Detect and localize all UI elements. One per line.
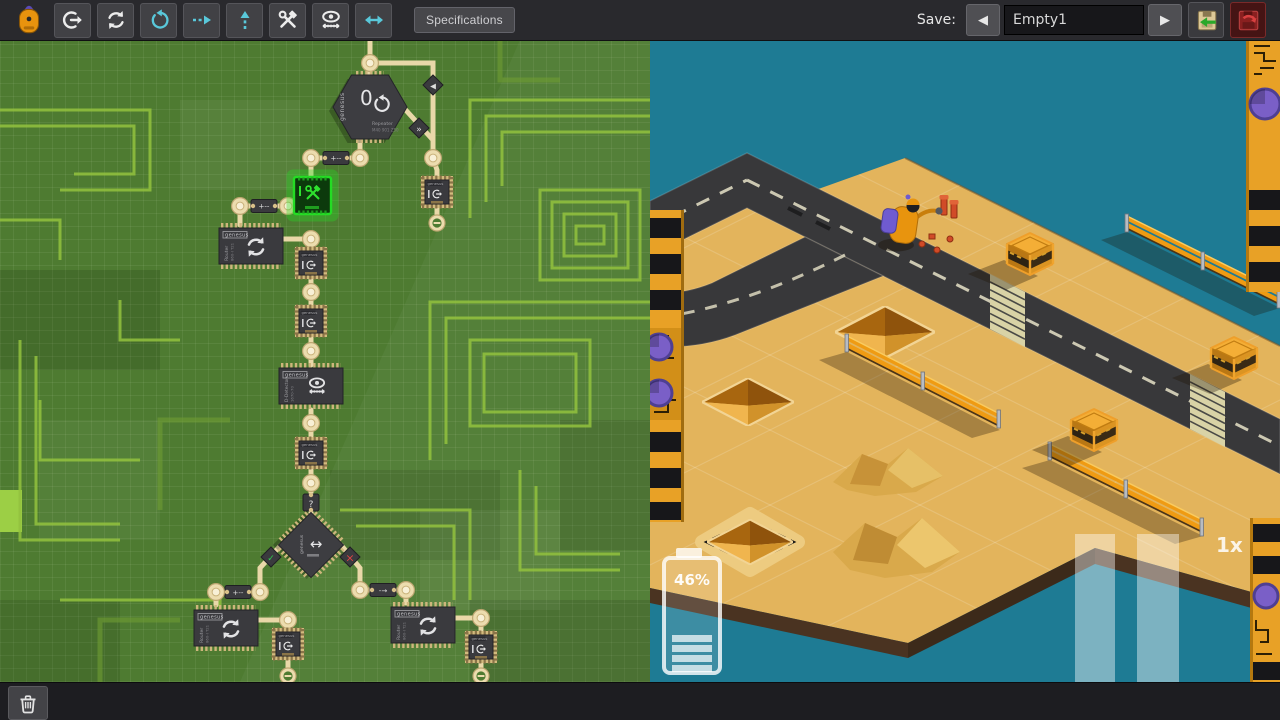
robot-avatar-icon[interactable] <box>10 1 48 39</box>
hazard-strip-left <box>650 210 684 522</box>
io-chip[interactable] <box>295 305 327 337</box>
save-next-button[interactable]: ▶ <box>1148 4 1182 36</box>
output-terminal <box>280 668 296 682</box>
query-component: ? <box>303 493 319 512</box>
plus-dash-icon: +-- <box>331 155 342 163</box>
io-chip[interactable] <box>295 247 327 279</box>
dash-arrow-icon: -→ <box>379 587 388 595</box>
top-toolbar: Specifications Save: ◀ ▶ <box>0 0 1280 41</box>
tools-icon <box>276 8 300 32</box>
double-chevron-icon: » <box>416 125 422 135</box>
gate-component: ◀ <box>423 75 443 95</box>
save-slot-button[interactable] <box>1230 2 1266 38</box>
output-terminal <box>429 215 445 231</box>
double-arrow-icon: ↔ <box>310 535 323 553</box>
save-slot-input[interactable] <box>1004 5 1144 35</box>
diode-component: +-- <box>225 586 251 599</box>
battery-percent: 46% <box>674 571 710 589</box>
load-button[interactable] <box>1188 2 1224 38</box>
signal-port[interactable] <box>1254 584 1278 608</box>
main-area: +-- +-- -→ +-- <box>0 40 1280 682</box>
signal-up-button[interactable] <box>226 3 263 38</box>
io-chip[interactable] <box>465 631 497 663</box>
repeater-chip[interactable]: genesus 0 Repeater M40 901 Z50 <box>329 74 407 143</box>
save-prev-button[interactable]: ◀ <box>966 4 1000 36</box>
diode-component: +-- <box>251 200 277 213</box>
router-chip[interactable] <box>391 605 455 646</box>
diode-component: -→ <box>370 584 396 597</box>
trash-icon <box>16 691 40 715</box>
plus-dash-icon: +-- <box>259 203 270 211</box>
double-arrow-icon <box>362 8 386 32</box>
chip-label: Repeater <box>372 121 393 127</box>
sync-icon <box>104 8 128 32</box>
load-floppy-icon <box>1193 7 1219 33</box>
swap-button[interactable] <box>97 3 134 38</box>
chip-brand: genesus <box>300 534 305 554</box>
save-label: Save: <box>917 12 956 28</box>
detector-chip[interactable] <box>279 366 343 407</box>
circuit-board-panel[interactable]: +-- +-- -→ +-- <box>0 40 650 682</box>
io-chip[interactable] <box>421 176 453 208</box>
tools-button[interactable] <box>269 3 306 38</box>
dashed-arrow-up-icon <box>233 8 257 32</box>
save-floppy-icon <box>1235 7 1261 33</box>
board-svg: +-- +-- -→ +-- <box>0 40 650 682</box>
chip-model: M40 901 Z50 <box>372 128 399 133</box>
selected-tool-chip[interactable] <box>290 173 335 218</box>
diode-component: +-- <box>323 152 349 165</box>
io-chip[interactable] <box>295 437 327 469</box>
factory-scene-panel: 46% 1x <box>650 40 1280 682</box>
undo-icon <box>147 8 171 32</box>
app-window: Specifications Save: ◀ ▶ <box>0 0 1280 720</box>
battery-indicator: 46% <box>664 548 720 673</box>
io-chip[interactable] <box>272 628 304 660</box>
hazard-strip-right-top <box>1246 40 1280 292</box>
left-triangle-icon: ◀ <box>430 82 436 91</box>
chip-brand: genesus <box>339 92 346 121</box>
output-terminal <box>473 668 489 682</box>
scene-svg: 46% 1x <box>650 40 1280 682</box>
router-chip[interactable] <box>194 608 258 649</box>
hazard-strip-right-bottom <box>1250 518 1280 682</box>
signal-forward-button[interactable] <box>183 3 220 38</box>
measure-button[interactable] <box>312 3 349 38</box>
plus-dash-icon: +-- <box>233 589 244 597</box>
router-chip[interactable] <box>219 226 283 267</box>
undo-button[interactable] <box>140 3 177 38</box>
question-icon: ? <box>309 500 314 510</box>
trash-button[interactable] <box>8 686 48 720</box>
check-icon: ✓ <box>267 554 275 564</box>
speed-indicator[interactable]: 1x <box>1216 533 1243 557</box>
stretch-button[interactable] <box>355 3 392 38</box>
exit-button[interactable] <box>54 3 91 38</box>
specifications-button[interactable]: Specifications <box>414 7 515 33</box>
exit-icon <box>61 8 85 32</box>
cross-icon: × <box>345 552 354 565</box>
dashed-arrow-right-icon <box>190 8 214 32</box>
board-patches <box>0 40 650 682</box>
repeater-counter: 0 <box>360 86 373 110</box>
eye-ruler-icon <box>319 8 343 32</box>
bottom-bar <box>0 682 1280 720</box>
